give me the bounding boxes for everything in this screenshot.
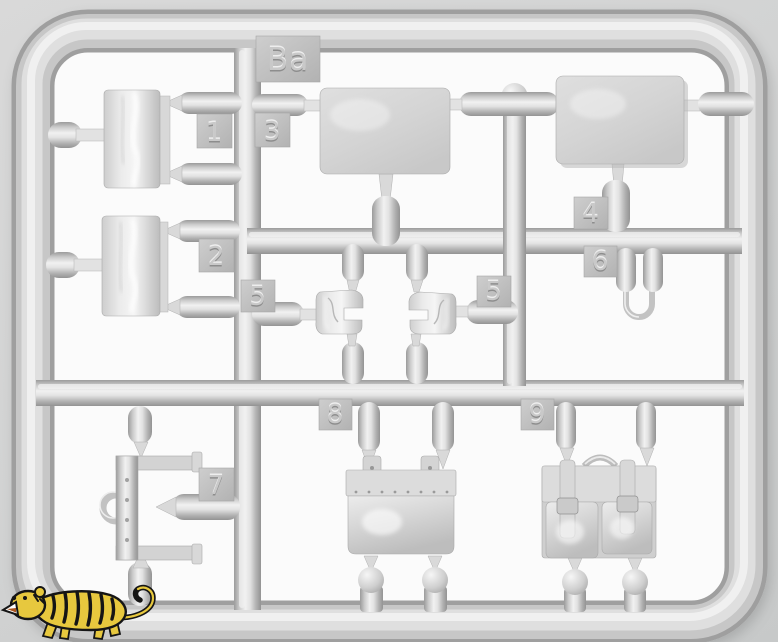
part-tag-1: 1 1 1	[197, 114, 232, 149]
svg-text:6: 6	[592, 247, 610, 277]
part-tag-4: 4 4 4	[574, 197, 608, 230]
runner-horizontal-mid	[247, 228, 742, 254]
part-tag-5a: 5 5 5	[241, 280, 275, 313]
part-tag-2: 2 2 2	[199, 239, 234, 273]
svg-text:5: 5	[249, 282, 267, 312]
svg-text:Ba: Ba	[267, 42, 309, 78]
part-tag-5b: 5 5 5	[477, 276, 511, 309]
svg-text:3: 3	[264, 117, 282, 147]
sprue-photo: Ba Ba Ba 1 1 1 2 2 2	[0, 0, 778, 642]
svg-text:4: 4	[582, 199, 600, 229]
runner-horizontal-lower	[36, 380, 744, 406]
svg-text:9: 9	[529, 400, 547, 430]
part-tag-6: 6 6 6	[584, 246, 617, 279]
svg-text:8: 8	[327, 400, 345, 430]
sprue-drawing: Ba Ba Ba 1 1 1 2 2 2	[0, 0, 778, 642]
part-tag-9: 9 9 9	[521, 399, 554, 432]
part-tag-8: 8 8 8	[319, 399, 352, 432]
svg-text:7: 7	[208, 471, 226, 501]
svg-text:1: 1	[206, 118, 224, 148]
sprue-label-ba: Ba Ba Ba	[256, 36, 320, 82]
part-tag-3: 3 3 3	[255, 113, 290, 148]
svg-text:2: 2	[208, 242, 226, 272]
svg-text:5: 5	[485, 277, 503, 307]
part-tag-7: 7 7 7	[199, 468, 234, 502]
tiger-head	[3, 587, 45, 619]
